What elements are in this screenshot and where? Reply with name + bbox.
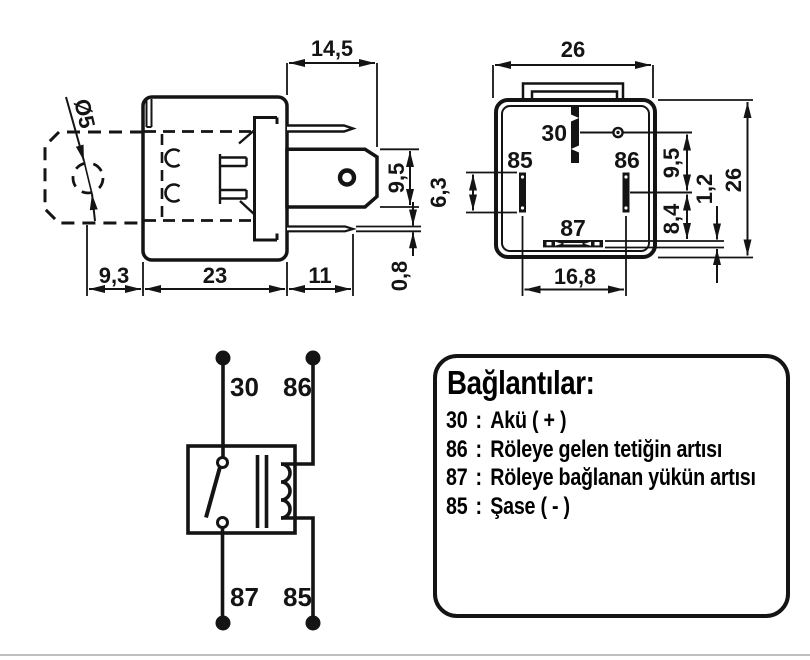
relay-symbol-box xyxy=(188,446,295,533)
legend-description: Röleye bağlanan yükün artısı xyxy=(490,464,755,493)
side-view-diagram: Ø5 14,5 xyxy=(0,0,430,330)
node-86 xyxy=(306,351,321,366)
footer-divider xyxy=(0,654,810,656)
top-tab-inner xyxy=(532,92,617,100)
dim-pins-to-pin87-label: 8,4 xyxy=(659,203,684,234)
dim-pin-thickness: 0,8 xyxy=(356,202,421,291)
legend-item-86: 86 : Röleye gelen tetiğin artısı xyxy=(446,436,720,465)
legend-description: Şase ( - ) xyxy=(490,493,570,522)
switch-contact-top xyxy=(218,458,228,468)
center-hole-dot xyxy=(616,131,619,134)
dim-width-label: 26 xyxy=(561,37,585,62)
legend-separator: : xyxy=(476,436,491,465)
legend-description: Röleye gelen tetiğin artısı xyxy=(490,436,722,465)
pin-30-slot xyxy=(571,106,579,163)
terminal-blade-87 xyxy=(287,149,377,207)
switch-contact-bottom xyxy=(218,518,228,528)
dim-pin85-to-pin86-label: 16,8 xyxy=(554,264,596,289)
schematic-label-30: 30 xyxy=(230,372,259,402)
pin-30-label: 30 xyxy=(541,120,567,146)
legend-box: Bağlantılar: 30 : Akü ( + ) 86 : Röleye … xyxy=(433,354,790,618)
blade-hole xyxy=(340,171,354,185)
bottom-view-diagram: 30 85 86 87 26 xyxy=(430,0,810,330)
legend-item-30: 30 : Akü ( + ) xyxy=(446,407,720,436)
dim-pin-protrusion-label: 11 xyxy=(308,263,331,288)
dim-pin30-to-pins-label: 9,5 xyxy=(659,148,684,179)
legend-item-87: 87 : Röleye bağlanan yükün artısı xyxy=(446,464,720,493)
dim-blade-height: 9,5 xyxy=(380,149,419,207)
legend-item-85: 85 : Şase ( - ) xyxy=(446,493,720,522)
terminal-pin-top xyxy=(287,126,353,132)
legend-pin-number: 85 xyxy=(446,493,476,522)
relay-body-side xyxy=(143,97,287,260)
node-30 xyxy=(216,351,231,366)
pin-87-label: 87 xyxy=(560,215,586,241)
dim-pin-length-label: 14,5 xyxy=(311,36,353,61)
circuit-schematic: 30 86 87 85 xyxy=(150,340,380,650)
terminal-pin-bottom xyxy=(287,227,353,232)
dim-pin85-length-label: 6,3 xyxy=(430,177,451,208)
pin-85-label: 85 xyxy=(507,147,533,173)
schematic-label-87: 87 xyxy=(230,582,259,612)
node-87 xyxy=(216,616,231,631)
pin-85-slot-dot-top xyxy=(521,175,524,178)
pin-86-slot-dot-top xyxy=(624,175,627,178)
dim-tab-offset-label: 9,3 xyxy=(99,263,130,288)
switch-blade xyxy=(206,467,220,518)
dim-slot-thickness-label: 1,2 xyxy=(692,174,717,205)
pin-85-slot-dot-bottom xyxy=(521,206,524,209)
legend-pin-number: 86 xyxy=(446,436,476,465)
legend-description: Akü ( + ) xyxy=(490,407,566,436)
dim-pins-to-pin87: 8,4 xyxy=(659,195,687,240)
legend-pin-number: 30 xyxy=(446,407,476,436)
pin-86-label: 86 xyxy=(614,147,640,173)
dim-height-label: 26 xyxy=(721,168,746,192)
dim-width: 26 xyxy=(493,37,653,98)
schematic-label-86: 86 xyxy=(283,372,312,402)
legend-separator: : xyxy=(476,464,491,493)
legend-separator: : xyxy=(476,407,491,436)
relay-datasheet-page: Ø5 14,5 xyxy=(0,0,810,660)
dim-pin-thickness-label: 0,8 xyxy=(387,261,412,292)
hole-diameter-leader: Ø5 xyxy=(66,97,100,221)
node-85 xyxy=(306,616,321,631)
dim-body-width-label: 23 xyxy=(203,263,227,288)
pin-86-slot-dot-bottom xyxy=(624,206,627,209)
schematic-label-85: 85 xyxy=(283,582,312,612)
coil-symbol xyxy=(281,464,290,518)
dim-blade-height-label: 9,5 xyxy=(384,163,409,194)
dim-pin30-to-pins: 9,5 xyxy=(659,135,687,191)
legend-title: Bağlantılar: xyxy=(447,364,727,402)
legend-pin-number: 87 xyxy=(446,464,476,493)
legend-separator: : xyxy=(476,493,491,522)
